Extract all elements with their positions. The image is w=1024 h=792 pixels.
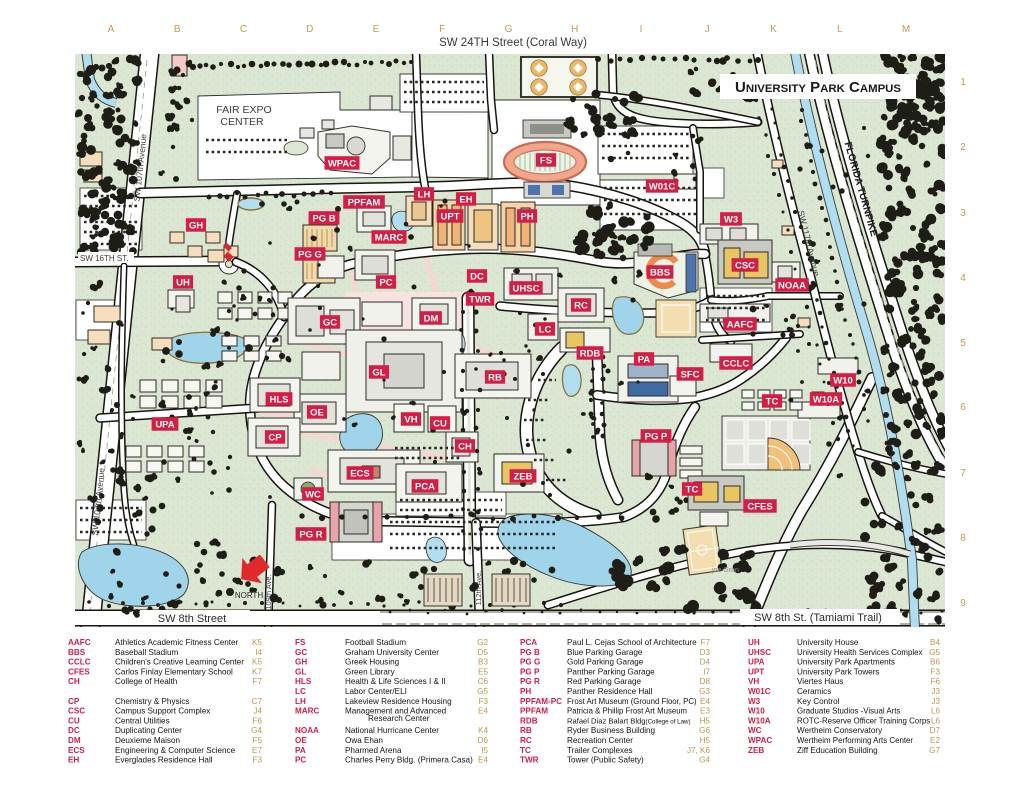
- svg-text:NOAA: NOAA: [778, 281, 806, 292]
- svg-text:FS: FS: [295, 638, 306, 647]
- svg-text:Children's Creative Learning C: Children's Creative Learning Center: [115, 658, 244, 667]
- svg-text:E: E: [373, 24, 380, 35]
- svg-text:Ryder Business Building: Ryder Business Building: [567, 726, 655, 735]
- svg-text:TC: TC: [766, 397, 779, 408]
- svg-text:National Hurricane Center: National Hurricane Center: [345, 726, 439, 735]
- svg-text:Chemistry & Physics: Chemistry & Physics: [115, 697, 190, 706]
- svg-text:6: 6: [960, 402, 966, 413]
- svg-text:W10: W10: [748, 707, 765, 716]
- svg-text:UPA: UPA: [748, 658, 765, 667]
- svg-text:J3: J3: [931, 697, 940, 706]
- svg-text:F3: F3: [253, 756, 263, 765]
- svg-text:University Health Services Com: University Health Services Complex: [797, 648, 922, 657]
- svg-text:Ziff Education Building: Ziff Education Building: [797, 746, 878, 755]
- svg-text:E3: E3: [700, 707, 710, 716]
- svg-text:K4: K4: [478, 726, 488, 735]
- svg-text:UPT: UPT: [748, 667, 764, 676]
- svg-text:B3: B3: [478, 658, 488, 667]
- svg-text:Key Control: Key Control: [797, 697, 840, 706]
- svg-text:FAIR EXPO: FAIR EXPO: [216, 104, 271, 116]
- svg-text:L: L: [837, 24, 843, 35]
- svg-text:1: 1: [960, 77, 966, 88]
- svg-text:CP: CP: [68, 697, 80, 706]
- svg-text:EH: EH: [68, 756, 79, 765]
- svg-text:D7: D7: [930, 726, 941, 735]
- svg-text:AAFC: AAFC: [727, 320, 754, 331]
- svg-text:8: 8: [960, 533, 966, 544]
- svg-text:L6: L6: [931, 707, 941, 716]
- svg-text:TC: TC: [520, 746, 531, 755]
- svg-text:Rafael Diaz Balart Bldg(Colleg: Rafael Diaz Balart Bldg(College of Law): [567, 716, 691, 725]
- svg-text:OE: OE: [295, 736, 307, 745]
- svg-text:RB: RB: [488, 373, 502, 384]
- svg-text:D8: D8: [700, 677, 711, 686]
- svg-text:W01C: W01C: [748, 687, 771, 696]
- svg-text:PH: PH: [520, 212, 533, 223]
- svg-text:PCA: PCA: [520, 638, 537, 647]
- svg-text:K7: K7: [252, 667, 262, 676]
- svg-text:UHSC: UHSC: [748, 648, 771, 657]
- svg-text:CU: CU: [433, 419, 447, 430]
- svg-text:EH: EH: [459, 195, 472, 206]
- svg-text:G6: G6: [699, 726, 710, 735]
- svg-text:VH: VH: [748, 677, 759, 686]
- svg-text:Engineering & Computer Science: Engineering & Computer Science: [115, 746, 236, 755]
- svg-text:CH: CH: [68, 677, 80, 686]
- svg-text:CCLC: CCLC: [723, 359, 750, 370]
- svg-text:OE: OE: [310, 408, 324, 419]
- svg-text:HLS: HLS: [270, 395, 289, 406]
- svg-text:H: H: [571, 24, 578, 35]
- svg-text:HLS: HLS: [295, 677, 312, 686]
- svg-text:Patricia & Phillip Frost Art M: Patricia & Phillip Frost Art Museum: [567, 707, 687, 716]
- svg-text:PG B: PG B: [312, 214, 335, 225]
- svg-text:C: C: [240, 24, 247, 35]
- svg-text:D: D: [306, 24, 313, 35]
- svg-text:DM: DM: [68, 736, 81, 745]
- svg-text:FS: FS: [540, 156, 552, 167]
- svg-text:Greek Housing: Greek Housing: [345, 658, 399, 667]
- svg-text:PA: PA: [295, 746, 306, 755]
- svg-text:PPFAM: PPFAM: [348, 198, 381, 209]
- svg-text:I4: I4: [255, 648, 262, 657]
- svg-text:Graduate Studios -Visual Arts: Graduate Studios -Visual Arts: [797, 707, 900, 716]
- svg-text:CP: CP: [268, 433, 282, 444]
- svg-text:G2: G2: [477, 638, 488, 647]
- svg-text:PG P: PG P: [645, 432, 668, 443]
- svg-text:Duplicating Center: Duplicating Center: [115, 726, 182, 735]
- svg-text:Lakeview Residence Housing: Lakeview Residence Housing: [345, 697, 452, 706]
- svg-text:E4: E4: [478, 707, 488, 716]
- svg-text:RC: RC: [520, 736, 532, 745]
- svg-text:GH: GH: [189, 221, 203, 232]
- svg-text:Red Parking Garage: Red Parking Garage: [567, 677, 642, 686]
- svg-text:Panther Residence Hall: Panther Residence Hall: [567, 687, 653, 696]
- svg-text:PG P: PG P: [520, 667, 540, 676]
- svg-text:L6: L6: [931, 716, 941, 725]
- svg-text:K5: K5: [252, 658, 262, 667]
- svg-text:CSC: CSC: [735, 261, 755, 272]
- svg-text:SFC: SFC: [681, 370, 700, 381]
- svg-text:F6: F6: [931, 677, 941, 686]
- svg-text:W3: W3: [748, 697, 761, 706]
- svg-text:SW 8th St. (Tamiami Trail): SW 8th St. (Tamiami Trail): [754, 612, 882, 624]
- svg-text:M: M: [902, 24, 910, 35]
- svg-text:PG B: PG B: [520, 648, 540, 657]
- svg-text:F3: F3: [931, 667, 941, 676]
- svg-text:WPAC: WPAC: [328, 159, 356, 170]
- svg-text:RC: RC: [574, 301, 588, 312]
- svg-text:G5: G5: [929, 648, 940, 657]
- svg-text:W01C: W01C: [649, 182, 676, 193]
- svg-text:I7: I7: [703, 667, 710, 676]
- svg-text:PPFAM: PPFAM: [520, 707, 548, 716]
- svg-text:Everglades Residence Hall: Everglades Residence Hall: [115, 756, 213, 765]
- svg-text:UH: UH: [748, 638, 760, 647]
- svg-text:DC: DC: [470, 272, 484, 283]
- svg-text:Labor Center/ELI: Labor Center/ELI: [345, 687, 407, 696]
- svg-text:Charles Perry Bldg. (Primera C: Charles Perry Bldg. (Primera Casa): [345, 756, 473, 765]
- svg-text:F: F: [439, 24, 445, 35]
- svg-text:A: A: [108, 24, 115, 35]
- svg-text:E2: E2: [930, 736, 940, 745]
- svg-text:5: 5: [960, 338, 966, 349]
- svg-text:Ceramics: Ceramics: [797, 687, 831, 696]
- svg-text:GL: GL: [372, 368, 385, 379]
- svg-text:SW 16TH ST.: SW 16TH ST.: [80, 254, 128, 263]
- svg-text:joe Gran: joe Gran: [711, 567, 739, 574]
- svg-text:CFES: CFES: [747, 502, 772, 513]
- svg-text:J: J: [705, 24, 710, 35]
- svg-text:RDB: RDB: [580, 349, 601, 360]
- svg-text:UHSC: UHSC: [513, 284, 540, 295]
- svg-text:G4: G4: [699, 756, 710, 765]
- svg-text:CENTER: CENTER: [220, 116, 264, 128]
- svg-text:2: 2: [960, 142, 966, 153]
- svg-text:DM: DM: [424, 314, 439, 325]
- svg-text:GC: GC: [295, 648, 307, 657]
- svg-text:Research Center: Research Center: [368, 714, 430, 723]
- svg-text:GL: GL: [295, 667, 306, 676]
- svg-text:SW 8th Street: SW 8th Street: [158, 613, 226, 625]
- svg-text:Baseball Stadium: Baseball Stadium: [115, 648, 178, 657]
- svg-text:E4: E4: [700, 697, 710, 706]
- svg-text:J3: J3: [931, 687, 940, 696]
- svg-text:CU: CU: [68, 716, 80, 725]
- svg-text:GC: GC: [323, 318, 337, 329]
- svg-text:Panther Parking Garage: Panther Parking Garage: [567, 667, 655, 676]
- svg-text:TC: TC: [686, 485, 699, 496]
- svg-text:Wertheim Performing Arts Cente: Wertheim Performing Arts Center: [797, 736, 913, 745]
- svg-text:UH: UH: [176, 278, 190, 289]
- svg-text:3: 3: [960, 208, 966, 219]
- svg-text:PC: PC: [295, 756, 306, 765]
- svg-text:UPA: UPA: [155, 420, 174, 431]
- svg-text:Carlos Finlay Elementary Schoo: Carlos Finlay Elementary School: [115, 667, 233, 676]
- svg-text:Athletics Academic Fitness Cen: Athletics Academic Fitness Center: [115, 638, 239, 647]
- svg-text:Tower (Public Safety): Tower (Public Safety): [567, 756, 644, 765]
- svg-text:Trailer Complexes: Trailer Complexes: [567, 746, 633, 755]
- svg-text:ECS: ECS: [350, 469, 370, 480]
- svg-text:W10A: W10A: [813, 395, 840, 406]
- svg-text:W10A: W10A: [748, 716, 771, 725]
- svg-text:E7: E7: [252, 746, 262, 755]
- svg-text:TWR: TWR: [520, 756, 539, 765]
- svg-text:SW 24TH Street (Coral Way): SW 24TH Street (Coral Way): [439, 37, 587, 49]
- svg-text:Recreation Center: Recreation Center: [567, 736, 633, 745]
- svg-text:G3: G3: [699, 687, 710, 696]
- svg-text:G7: G7: [929, 746, 940, 755]
- svg-text:CFES: CFES: [68, 667, 90, 676]
- svg-text:AAFC: AAFC: [68, 638, 91, 647]
- svg-text:ROTC-Reserve Officer Training: ROTC-Reserve Officer Training Corps: [797, 716, 930, 725]
- svg-text:F7: F7: [701, 638, 711, 647]
- svg-text:D6: D6: [478, 736, 489, 745]
- svg-text:Graham University Center: Graham University Center: [345, 648, 439, 657]
- svg-text:I5: I5: [481, 746, 488, 755]
- svg-text:C6: C6: [478, 677, 489, 686]
- svg-text:NORTH: NORTH: [235, 591, 264, 600]
- svg-text:PC: PC: [379, 278, 392, 289]
- svg-text:D3: D3: [700, 648, 711, 657]
- svg-text:UPT: UPT: [441, 212, 460, 223]
- svg-text:PG G: PG G: [298, 250, 322, 261]
- svg-text:7: 7: [960, 468, 966, 479]
- svg-text:PG R: PG R: [299, 530, 322, 541]
- svg-text:CCLC: CCLC: [68, 658, 91, 667]
- svg-text:University Park Towers: University Park Towers: [797, 667, 879, 676]
- svg-text:VH: VH: [404, 415, 417, 426]
- svg-text:I: I: [640, 24, 643, 35]
- svg-text:WC: WC: [748, 726, 762, 735]
- svg-text:H5: H5: [700, 736, 711, 745]
- svg-text:Central Utilities: Central Utilities: [115, 716, 170, 725]
- svg-text:ECS: ECS: [68, 746, 85, 755]
- svg-text:NOAA: NOAA: [295, 726, 319, 735]
- svg-text:RDB: RDB: [520, 716, 538, 725]
- svg-text:G4: G4: [251, 726, 262, 735]
- svg-text:LH: LH: [295, 697, 306, 706]
- svg-text:BBS: BBS: [650, 268, 670, 279]
- svg-text:MARC: MARC: [375, 233, 404, 244]
- svg-text:College of Health: College of Health: [115, 677, 177, 686]
- svg-text:LC: LC: [539, 325, 552, 336]
- svg-text:DC: DC: [68, 726, 80, 735]
- svg-text:RB: RB: [520, 726, 532, 735]
- svg-text:Deuxieme Maison: Deuxieme Maison: [115, 736, 180, 745]
- svg-text:K: K: [770, 24, 777, 35]
- svg-text:H5: H5: [700, 716, 711, 725]
- svg-text:C7: C7: [252, 697, 263, 706]
- svg-text:E5: E5: [478, 667, 488, 676]
- svg-text:PCA: PCA: [415, 482, 435, 493]
- svg-text:F6: F6: [253, 716, 263, 725]
- svg-text:9: 9: [960, 598, 966, 609]
- svg-text:D5: D5: [478, 648, 489, 657]
- svg-text:G: G: [505, 24, 513, 35]
- svg-text:PPFAM-PC: PPFAM-PC: [520, 697, 562, 706]
- svg-text:University House: University House: [797, 638, 859, 647]
- svg-text:PG R: PG R: [520, 677, 540, 686]
- svg-text:J4: J4: [253, 707, 262, 716]
- svg-text:ZEB: ZEB: [748, 746, 764, 755]
- svg-text:Pharmed Arena: Pharmed Arena: [345, 746, 402, 755]
- svg-text:E4: E4: [478, 756, 488, 765]
- svg-text:WC: WC: [305, 490, 321, 501]
- svg-text:PG G: PG G: [520, 658, 540, 667]
- svg-text:J7, K6: J7, K6: [687, 746, 711, 755]
- svg-text:Health & Life Sciences I & II: Health & Life Sciences I & II: [345, 677, 446, 686]
- svg-text:B4: B4: [930, 638, 940, 647]
- svg-text:Owa Ehan: Owa Ehan: [345, 736, 383, 745]
- svg-text:GH: GH: [295, 658, 307, 667]
- svg-text:Football Stadium: Football Stadium: [345, 638, 406, 647]
- svg-text:PH: PH: [520, 687, 531, 696]
- svg-text:PA: PA: [638, 355, 651, 366]
- svg-text:TWR: TWR: [469, 295, 491, 306]
- svg-text:F7: F7: [253, 677, 263, 686]
- svg-text:Viertes Haus: Viertes Haus: [797, 677, 843, 686]
- svg-text:Paul L. Cejas School of Archit: Paul L. Cejas School of Architecture: [567, 638, 697, 647]
- svg-text:MARC: MARC: [295, 707, 320, 716]
- svg-text:B6: B6: [930, 658, 940, 667]
- svg-text:D4: D4: [700, 658, 711, 667]
- svg-text:K5: K5: [252, 638, 262, 647]
- svg-text:CH: CH: [458, 442, 472, 453]
- svg-text:W3: W3: [724, 215, 738, 226]
- svg-text:Green Library: Green Library: [345, 667, 396, 676]
- svg-text:Blue Parking Garage: Blue Parking Garage: [567, 648, 643, 657]
- svg-text:CSC: CSC: [68, 707, 85, 716]
- svg-text:LH: LH: [418, 190, 431, 201]
- svg-text:Wertheim Conservatory: Wertheim Conservatory: [797, 726, 883, 735]
- svg-text:Campus Support Complex: Campus Support Complex: [115, 707, 210, 716]
- svg-text:BBS: BBS: [68, 648, 86, 657]
- svg-text:F3: F3: [479, 697, 489, 706]
- svg-text:ZEB: ZEB: [514, 472, 533, 483]
- svg-text:4: 4: [960, 273, 966, 284]
- svg-text:109th Ave.: 109th Ave.: [264, 574, 273, 609]
- svg-text:Frost Art Museum (Ground Floor: Frost Art Museum (Ground Floor, PC): [567, 697, 697, 706]
- svg-text:Gold Parking Garage: Gold Parking Garage: [567, 658, 644, 667]
- svg-text:G5: G5: [477, 687, 488, 696]
- svg-text:F5: F5: [253, 736, 263, 745]
- svg-text:W10: W10: [833, 376, 853, 387]
- svg-text:WPAC: WPAC: [748, 736, 772, 745]
- svg-text:112th Ave.: 112th Ave.: [474, 571, 483, 606]
- svg-text:University Park Apartments: University Park Apartments: [797, 658, 895, 667]
- svg-text:B: B: [174, 24, 181, 35]
- svg-text:LC: LC: [295, 687, 306, 696]
